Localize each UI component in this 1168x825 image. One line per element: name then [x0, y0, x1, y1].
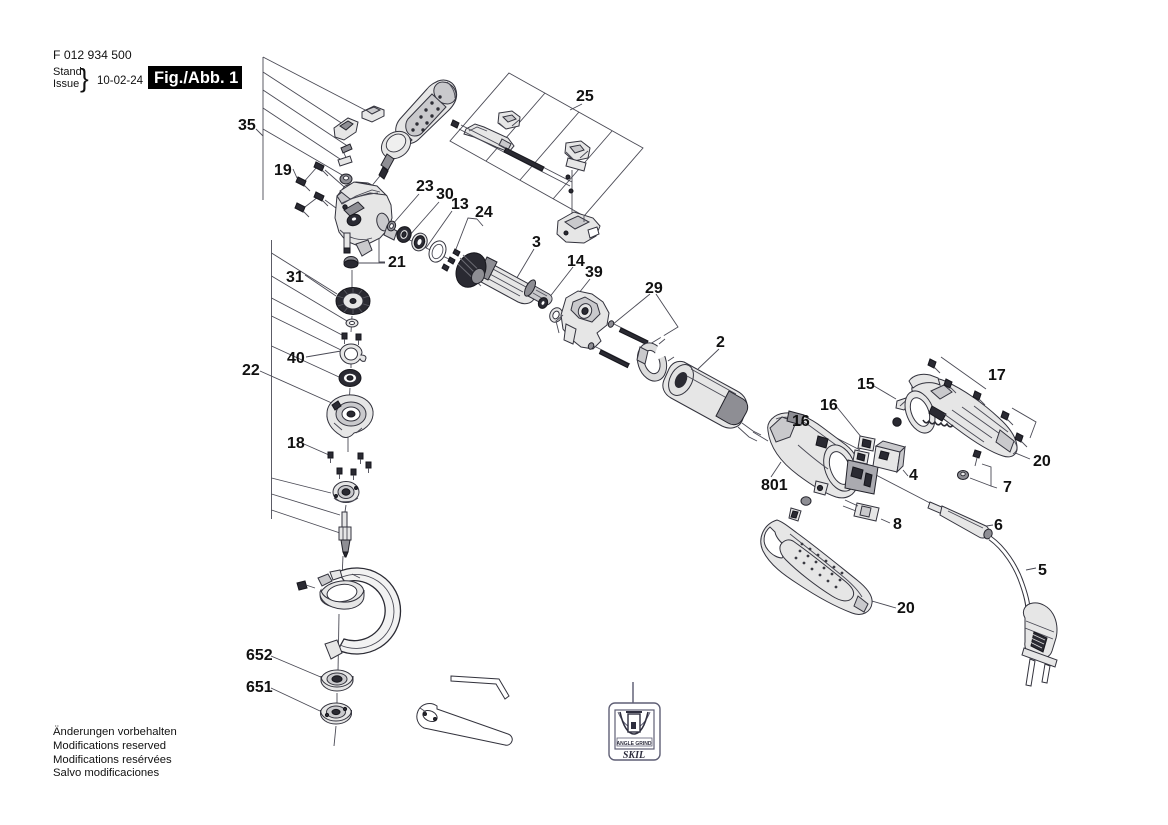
svg-text:6: 6 — [994, 517, 1003, 534]
svg-text:F 012 934 500: F 012 934 500 — [53, 48, 132, 62]
svg-text:16: 16 — [820, 397, 838, 414]
svg-text:16: 16 — [792, 413, 810, 430]
svg-text:Modifications resérvées: Modifications resérvées — [53, 754, 172, 766]
svg-text:}: } — [80, 63, 89, 93]
svg-text:15: 15 — [857, 376, 875, 393]
svg-text:29: 29 — [645, 280, 663, 297]
svg-text:14: 14 — [567, 253, 585, 270]
svg-text:20: 20 — [897, 600, 915, 617]
svg-text:652: 652 — [246, 647, 273, 664]
svg-text:13: 13 — [451, 196, 469, 213]
svg-text:3: 3 — [532, 234, 541, 251]
svg-text:18: 18 — [287, 435, 305, 452]
svg-text:31: 31 — [286, 269, 304, 286]
svg-text:Salvo modificaciones: Salvo modificaciones — [53, 767, 159, 779]
svg-text:10-02-24: 10-02-24 — [97, 75, 144, 87]
svg-text:Issue: Issue — [53, 78, 79, 90]
svg-text:19: 19 — [274, 162, 292, 179]
svg-text:23: 23 — [416, 178, 434, 195]
svg-text:651: 651 — [246, 679, 273, 696]
svg-text:20: 20 — [1033, 453, 1051, 470]
svg-text:21: 21 — [388, 254, 406, 271]
svg-text:25: 25 — [576, 88, 594, 105]
svg-text:2: 2 — [716, 334, 725, 351]
svg-text:ANGLE GRIND: ANGLE GRIND — [617, 741, 652, 747]
svg-text:Änderungen vorbehalten: Änderungen vorbehalten — [53, 726, 177, 738]
svg-text:SKIL: SKIL — [623, 750, 645, 761]
svg-text:8: 8 — [893, 516, 902, 533]
svg-text:4: 4 — [909, 467, 918, 484]
svg-text:22: 22 — [242, 362, 260, 379]
svg-text:17: 17 — [988, 367, 1006, 384]
svg-text:Stand: Stand — [53, 66, 82, 78]
svg-text:35: 35 — [238, 117, 256, 134]
svg-text:5: 5 — [1038, 562, 1047, 579]
svg-text:7: 7 — [1003, 479, 1012, 496]
svg-text:Fig./Abb. 1: Fig./Abb. 1 — [154, 69, 238, 87]
svg-text:801: 801 — [761, 477, 788, 494]
svg-text:Modifications reserved: Modifications reserved — [53, 740, 166, 752]
svg-text:39: 39 — [585, 264, 603, 281]
svg-text:40: 40 — [287, 350, 305, 367]
svg-text:24: 24 — [475, 204, 493, 221]
